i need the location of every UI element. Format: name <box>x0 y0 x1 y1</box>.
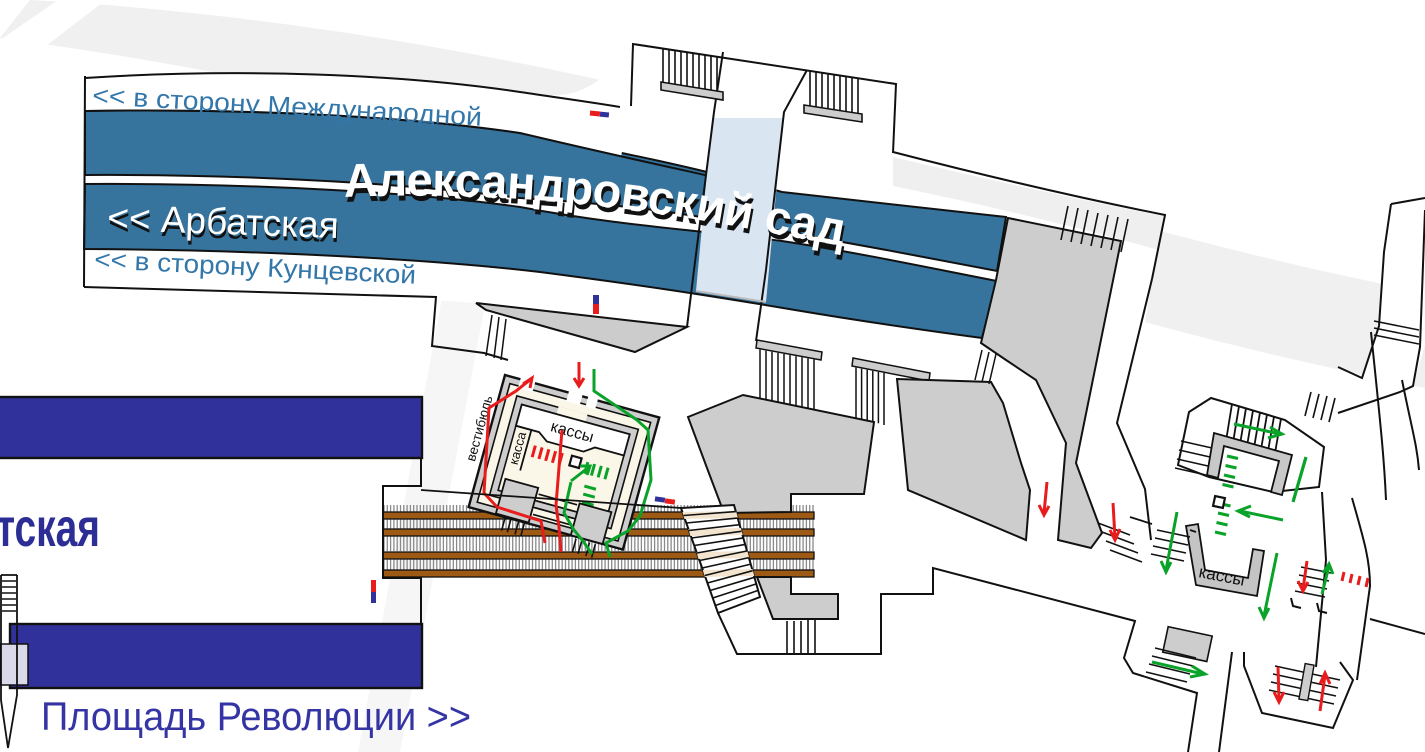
svg-text:тская: тская <box>0 498 100 558</box>
svg-text:Площадь Революции >>: Площадь Революции >> <box>41 695 471 739</box>
svg-text:<< Арбатская: << Арбатская <box>107 197 340 246</box>
